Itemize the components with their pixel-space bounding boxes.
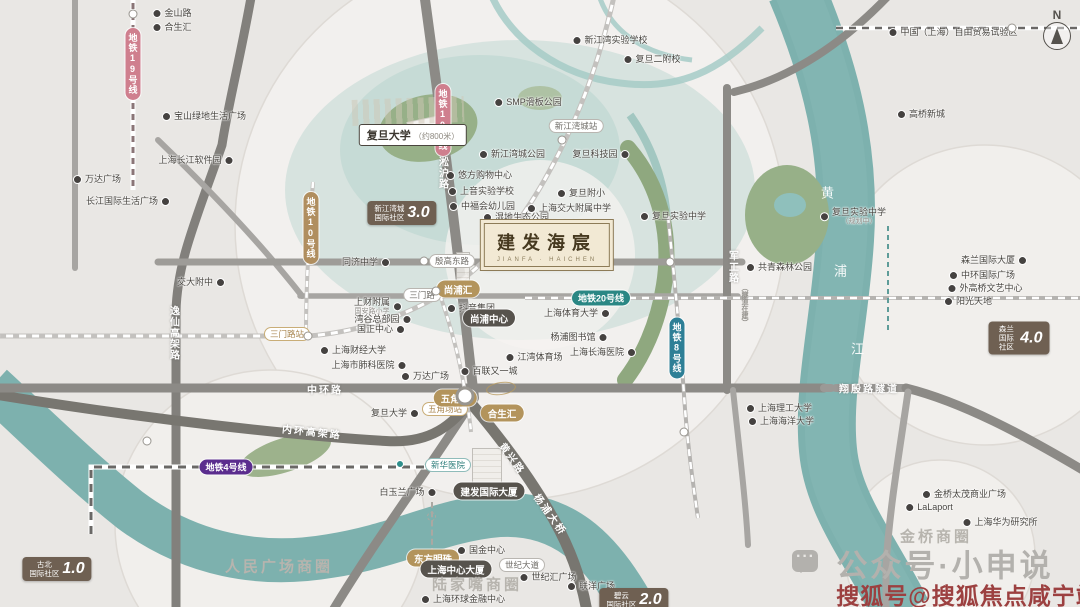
metro-station-dot (304, 332, 313, 341)
poi-text: 外高桥文艺中心 (959, 284, 1022, 294)
compass-arrow-icon (1051, 28, 1063, 44)
poi-label: 复旦实验中学（规划中） (820, 208, 886, 226)
poi-label: 中福会幼儿园 (449, 202, 515, 212)
poi-label: 上海环球金融中心 (421, 595, 505, 605)
poi-text: 复旦实验中学 (652, 212, 706, 222)
poi-text: 同济中学 (342, 258, 378, 268)
poi-label: 国正中心 (357, 325, 405, 335)
chat-bubble-icon (792, 550, 818, 572)
poi-text: 上海海洋大学 (760, 417, 814, 427)
metro-line-badge: 地铁19号线 (126, 28, 141, 100)
roundabout (456, 387, 475, 406)
poi-icon (922, 490, 931, 499)
station-oval: 世纪大道 (499, 558, 545, 572)
poi-icon (398, 361, 407, 370)
business-district-label: 陆家嘴商圈 (432, 574, 522, 595)
poi-text: 复旦二附校 (635, 55, 680, 65)
poi-text: 中国（上海）自由贸易试验区 (900, 28, 1017, 38)
poi-icon (905, 503, 914, 512)
fudan-university-badge: 复旦大学 （约800米） (359, 124, 467, 146)
poi-label: 上海理工大学 (746, 404, 812, 414)
poi-label: 万达广场 (73, 175, 121, 185)
community-number: 4.0 (1020, 330, 1042, 346)
poi-text: LaLaport (917, 503, 953, 513)
poi-text: 中福会幼儿园 (461, 202, 515, 212)
poi-label: 金山路 (152, 9, 191, 19)
poi-icon (460, 367, 469, 376)
poi-label: 万达广场 (401, 372, 449, 382)
poi-icon (746, 404, 755, 413)
poi-icon (320, 346, 329, 355)
poi-label: 上海长海医院 (570, 348, 636, 358)
poi-text: 复旦附小 (569, 189, 605, 199)
project-name: 建发海宸 (497, 229, 597, 255)
poi-label: 上海海洋大学 (748, 417, 814, 427)
metro-station-dot (680, 428, 689, 437)
poi-icon (746, 263, 755, 272)
metro-station-dot (1008, 24, 1017, 33)
poi-icon (152, 9, 161, 18)
poi-label: 悠方购物中心 (446, 171, 512, 181)
poi-label: 同济中学 (342, 258, 390, 268)
poi-icon (947, 284, 956, 293)
metro-line-badge: 地铁10号线 (304, 192, 319, 264)
poi-text: 宝山绿地生活广场 (174, 112, 246, 122)
poi-icon (396, 325, 405, 334)
poi-label: 复旦附小 (557, 189, 605, 199)
poi-label: 上海长江软件园 (158, 156, 233, 166)
poi-icon (623, 55, 632, 64)
community-line1: 新江湾城 (374, 204, 404, 213)
poi-icon (73, 175, 82, 184)
metro-station-dot (666, 258, 675, 267)
map-canvas: 金山路合生汇宝山绿地生活广场上海长江软件园万达广场长江国际生活广场新江湾实验学校… (0, 0, 1080, 607)
poi-icon (621, 150, 630, 159)
metro-line-badge: 地铁20号线 (572, 291, 630, 306)
poi-text: 中环国际广场 (961, 271, 1015, 281)
poi-text: 复旦大学 (371, 409, 407, 419)
poi-subtext: （规划中） (832, 218, 886, 226)
poi-label: 杨浦图书馆 (550, 333, 607, 343)
poi-label: 共青森林公园 (746, 263, 812, 273)
poi-label: 金桥太茂商业广场 (922, 490, 1006, 500)
compass-circle (1043, 22, 1071, 50)
poi-icon (944, 297, 953, 306)
poi-label: 复旦大学 (371, 409, 419, 419)
poi-icon (152, 23, 161, 32)
poi-text: 高桥新城 (909, 110, 945, 120)
poi-text: 江湾体育场 (517, 353, 562, 363)
poi-text: 上海体育大学 (544, 309, 598, 319)
poi-text: 白玉兰广场 (379, 488, 424, 498)
poi-icon (820, 212, 829, 221)
project-subtitle: JIANFA · HAICHEN (497, 257, 597, 263)
metro-station-dot (558, 136, 567, 145)
poi-text: 交大附中 (177, 278, 213, 288)
road-label: 军工路 (725, 251, 740, 284)
poi-icon (1018, 256, 1027, 265)
metro-station-dot (396, 460, 404, 468)
poi-text: 复旦实验中学（规划中） (832, 208, 886, 226)
poi-text: 新江湾城公园 (491, 150, 545, 160)
metro-line-badge: 地铁4号线 (199, 460, 252, 475)
poi-text: 金山路 (164, 9, 191, 19)
community-line2: 国际社区 (29, 569, 59, 578)
poi-icon (410, 409, 419, 418)
road-label: 内环高架路 (281, 420, 342, 441)
community-badge: 古北国际社区1.0 (22, 557, 91, 581)
poi-text: 上音实验学校 (460, 187, 514, 197)
poi-text: 上海华为研究所 (974, 518, 1037, 528)
poi-text: 上海交大附属中学 (539, 204, 611, 214)
poi-text: 上海长海医院 (570, 348, 624, 358)
poi-label: 中国（上海）自由贸易试验区 (888, 28, 1017, 38)
river-name-char: 浦 (834, 261, 848, 280)
poi-icon (888, 28, 897, 37)
poi-text: 悠方购物中心 (458, 171, 512, 181)
poi-text: 国正中心 (357, 325, 393, 335)
poi-icon (567, 582, 576, 591)
road-label: （隧道在建） (739, 284, 749, 326)
poi-text: 上海财经大学 (332, 346, 386, 356)
poi-label: 外高桥文艺中心 (947, 284, 1022, 294)
compass: N (1043, 8, 1071, 50)
compass-n-label: N (1043, 8, 1071, 22)
poi-icon (627, 348, 636, 357)
fudan-label: 复旦大学 (367, 130, 411, 142)
poi-label: 白玉兰广场 (379, 488, 436, 498)
poi-icon (381, 258, 390, 267)
road-label: 淞沪路 (435, 157, 450, 190)
community-badge: 碧云国际社区2.0 (599, 588, 668, 607)
poi-text: 共青森林公园 (758, 263, 812, 273)
poi-label: 上海财经大学 (320, 346, 386, 356)
station-oval: 新华医院 (425, 458, 471, 472)
river-name-char: 黄 (821, 183, 835, 202)
poi-icon (421, 595, 430, 604)
metro-line-badge: 地铁8号线 (670, 318, 685, 379)
community-number: 2.0 (639, 592, 661, 607)
poi-text: 金桥太茂商业广场 (934, 490, 1006, 500)
poi-label: 宝山绿地生活广场 (162, 112, 246, 122)
poi-icon (403, 315, 412, 324)
watermark-sohu: 搜狐号@搜狐焦点咸宁站 (836, 577, 1080, 607)
poi-text: 上海理工大学 (758, 404, 812, 414)
poi-label: 复旦二附校 (623, 55, 680, 65)
road-label: 翔殷路隧道 (839, 381, 899, 396)
poi-icon (897, 110, 906, 119)
poi-text: 百联又一城 (472, 367, 517, 377)
road-label: 杨浦大桥 (531, 490, 571, 538)
poi-text: 复旦科技园 (572, 150, 617, 160)
poi-text: 上海市肺科医院 (331, 361, 394, 371)
poi-text: 上海环球金融中心 (433, 595, 505, 605)
poi-icon (494, 98, 503, 107)
metro-station-dot (129, 10, 138, 19)
landmark-dark-badge: 尚浦中心 (463, 310, 515, 327)
community-line1: 碧云 (606, 591, 636, 600)
poi-icon (479, 150, 488, 159)
project-badge: 建发海宸 JIANFA · HAICHEN (484, 223, 610, 267)
poi-label: 交大附中 (177, 278, 225, 288)
station-oval: 新江湾城站 (549, 119, 604, 133)
poi-label: 上海体育大学 (544, 309, 610, 319)
community-number: 1.0 (62, 561, 84, 577)
poi-label: LaLaport (905, 503, 953, 513)
road-label: 黄兴路 (496, 439, 529, 477)
poi-label: 上海市肺科医院 (331, 361, 406, 371)
community-line2: 国际社区 (996, 334, 1018, 352)
poi-icon (599, 333, 608, 342)
poi-label: 国金中心 (457, 546, 505, 556)
poi-label: SMP滑板公园 (494, 98, 562, 108)
poi-label: 合生汇 (152, 23, 191, 33)
poi-label: 阳光天地 (944, 297, 992, 307)
poi-text: 万达广场 (413, 372, 449, 382)
poi-label: 新江湾城公园 (479, 150, 545, 160)
business-district-label: 人民广场商圈 (225, 556, 333, 577)
poi-icon (572, 36, 581, 45)
poi-icon (640, 212, 649, 221)
poi-text: SMP滑板公园 (506, 98, 562, 108)
metro-station-dot (432, 287, 441, 296)
poi-label: 上音实验学校 (448, 187, 514, 197)
poi-text: 长江国际生活广场 (86, 197, 158, 207)
poi-icon (161, 197, 170, 206)
poi-label: 复旦实验中学 (640, 212, 706, 222)
poi-label: 长江国际生活广场 (86, 197, 170, 207)
poi-text: 新江湾实验学校 (584, 36, 647, 46)
road-label: 逸仙高架路 (166, 306, 181, 361)
metro-station-dot (420, 257, 429, 266)
poi-icon (949, 271, 958, 280)
map-labels: 金山路合生汇宝山绿地生活广场上海长江软件园万达广场长江国际生活广场新江湾实验学校… (0, 0, 1080, 607)
poi-label: 森兰国际大厦 (961, 256, 1027, 266)
poi-text: 合生汇 (164, 23, 191, 33)
community-number: 3.0 (407, 205, 429, 221)
poi-label: 上海交大附属中学 (527, 204, 611, 214)
poi-icon (447, 304, 456, 313)
poi-icon (505, 353, 514, 362)
poi-icon (225, 156, 234, 165)
metro-station-dot (143, 437, 152, 446)
poi-text: 森兰国际大厦 (961, 256, 1015, 266)
river-name-char: 江 (851, 339, 865, 358)
poi-label: 中环国际广场 (949, 271, 1015, 281)
station-oval: 殷高东路 (429, 254, 475, 268)
community-badge: 新江湾城国际社区3.0 (367, 201, 436, 225)
landmark-gold-badge: 尚浦汇 (437, 281, 480, 298)
community-line2: 国际社区 (606, 600, 636, 607)
poi-label: 高桥新城 (897, 110, 945, 120)
poi-label: 复旦科技园 (572, 150, 629, 160)
poi-icon (162, 112, 171, 121)
poi-icon (393, 302, 402, 311)
poi-label: 百联又一城 (460, 367, 517, 377)
landmark-gold-badge: 合生汇 (481, 405, 524, 422)
poi-label: 新江湾实验学校 (572, 36, 647, 46)
poi-label: 上海华为研究所 (962, 518, 1037, 528)
poi-icon (557, 189, 566, 198)
poi-icon (216, 278, 225, 287)
poi-icon (748, 417, 757, 426)
poi-icon (449, 202, 458, 211)
community-badge: 森兰国际社区4.0 (989, 322, 1050, 355)
community-line1: 森兰 (996, 325, 1018, 334)
poi-text: 上海长江软件园 (158, 156, 221, 166)
poi-text: 阳光天地 (956, 297, 992, 307)
landmark-dark-badge: 建发国际大厦 (453, 483, 524, 500)
community-line2: 国际社区 (374, 213, 404, 222)
poi-icon (401, 372, 410, 381)
road-label: 中环路 (307, 382, 343, 397)
poi-icon (601, 309, 610, 318)
poi-icon (428, 488, 437, 497)
fudan-distance: （约800米） (414, 132, 459, 141)
poi-text: 万达广场 (85, 175, 121, 185)
poi-icon (527, 204, 536, 213)
community-line1: 古北 (29, 560, 59, 569)
poi-label: 江湾体育场 (505, 353, 562, 363)
poi-text: 国金中心 (469, 546, 505, 556)
poi-icon (483, 213, 492, 222)
poi-text: 杨浦图书馆 (550, 333, 595, 343)
